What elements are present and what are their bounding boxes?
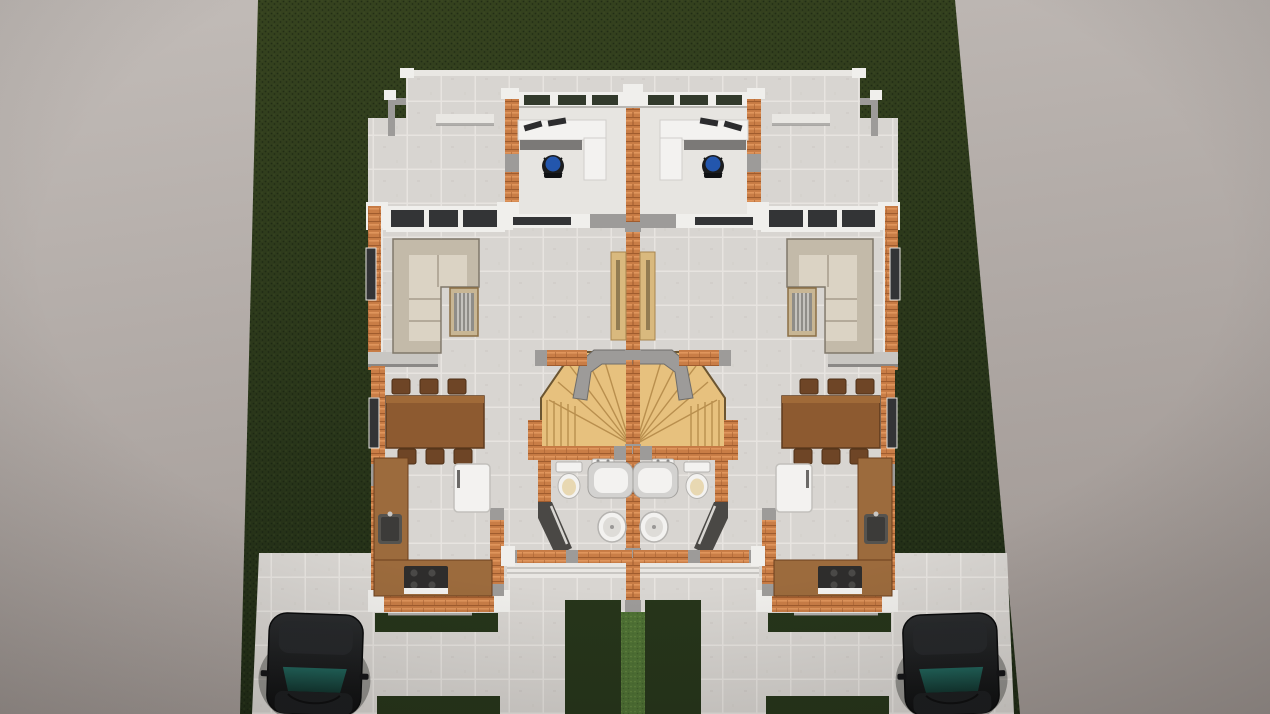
render-viewport [0,0,1270,714]
duplex-render [0,0,1270,714]
vignette [0,0,1270,714]
